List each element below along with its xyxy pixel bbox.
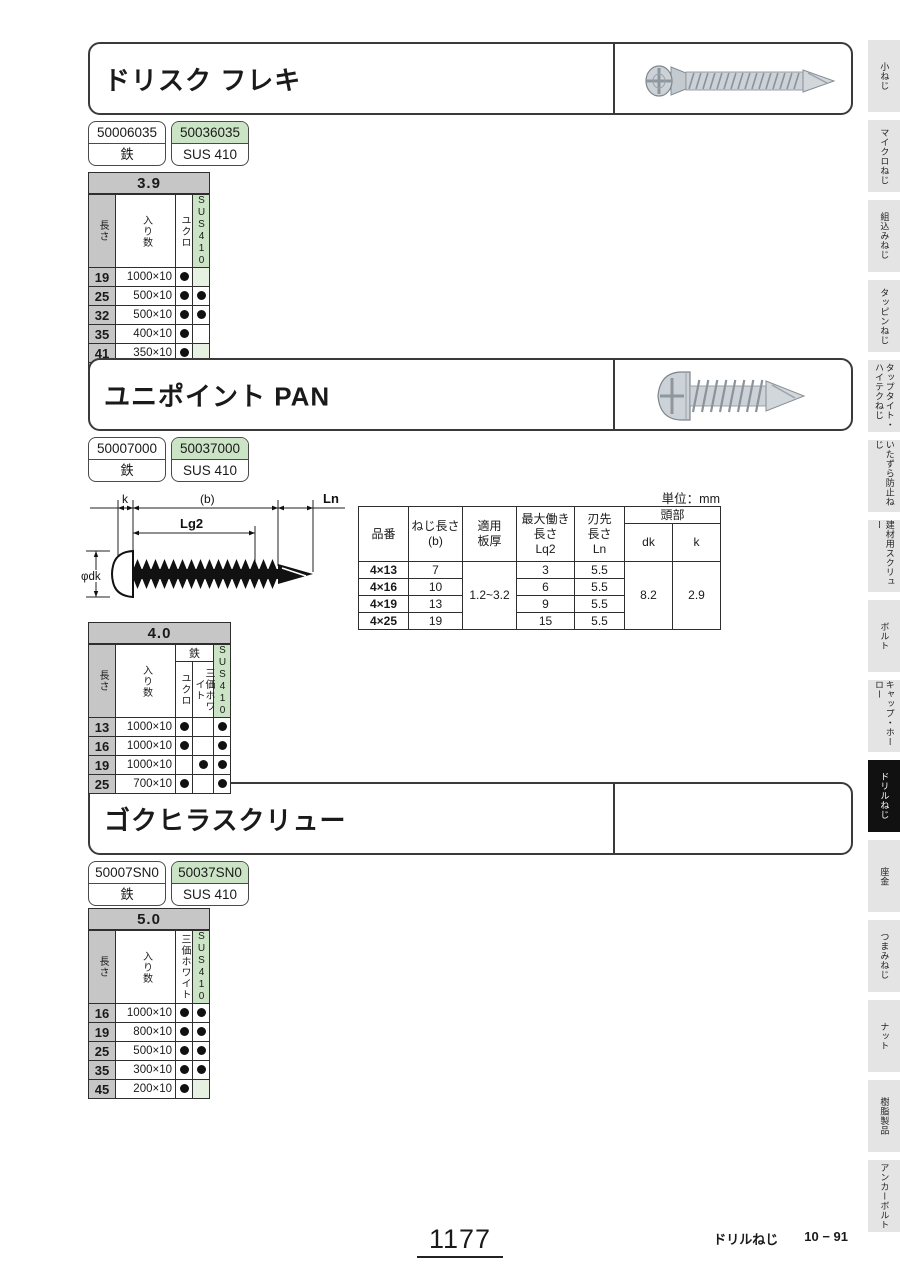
sidebar-tab-14[interactable]: 樹脂製品 (868, 1080, 900, 1152)
qty-cell: 200×10 (116, 1080, 176, 1099)
availability-dot (180, 291, 189, 300)
part-code: 50037000 (172, 438, 248, 460)
length-cell: 19 (89, 756, 116, 775)
spec-b-cell: 19 (409, 613, 463, 630)
qty-cell: 300×10 (116, 1061, 176, 1080)
availability-dot (180, 310, 189, 319)
spec-dk-cell: 8.2 (625, 562, 673, 630)
part-number-box: 50007000鉄 (88, 437, 166, 482)
spec-col-dk: dk (625, 524, 673, 562)
finish-dot-cell (176, 287, 193, 306)
finish-dot-cell (193, 737, 214, 756)
availability-dot (218, 741, 227, 750)
length-header: 長さ (89, 194, 116, 268)
size-table: 3.9長さ入り数ユクロSUS410191000×1025500×1032500×… (88, 172, 210, 382)
availability-dot (180, 779, 189, 788)
availability-dot (180, 272, 189, 281)
length-cell: 16 (89, 1004, 116, 1023)
sidebar-tab-5[interactable]: タップタイト・ ハイテクねじ (868, 360, 900, 432)
spec-lq2-cell: 9 (517, 596, 575, 613)
availability-dot (218, 779, 227, 788)
length-header: 長さ (89, 644, 116, 718)
availability-dot (197, 1027, 206, 1036)
finish-dot-cell (193, 775, 214, 794)
dim-label-dk: φdk (81, 571, 101, 583)
finish-dot-cell (176, 756, 193, 775)
availability-dot (218, 760, 227, 769)
spec-col-screw-len: ねじ長さ (b) (409, 507, 463, 562)
spec-col-work-len: 最大働き 長さ Lq2 (517, 507, 575, 562)
spec-ln-cell: 5.5 (575, 562, 625, 579)
sidebar-tab-8[interactable]: ボルト (868, 600, 900, 672)
availability-dot (197, 310, 206, 319)
size-band: 3.9 (89, 173, 210, 195)
availability-dot (180, 348, 189, 357)
qty-header: 入り数 (116, 930, 176, 1004)
size-table: 5.0長さ入り数三価ホワイトSUS410161000×1019800×10255… (88, 908, 210, 1099)
finish-dot-cell (193, 325, 210, 344)
part-numbers-3: 50007SN0鉄50037SN0SUS 410 (88, 861, 249, 906)
part-numbers-2: 50007000鉄50037000SUS 410 (88, 437, 249, 482)
spec-col-head: 頭部 (625, 507, 721, 524)
finish-dot-cell (214, 737, 231, 756)
length-cell: 25 (89, 1042, 116, 1061)
spec-lq2-cell: 6 (517, 579, 575, 596)
finish-dot-cell (176, 268, 193, 287)
finish-dot-cell (214, 718, 231, 737)
spec-b-cell: 13 (409, 596, 463, 613)
sidebar-tab-6[interactable]: いたずら防止ねじ (868, 440, 900, 512)
size-band: 4.0 (89, 623, 231, 645)
availability-dot (180, 1046, 189, 1055)
part-number-box: 50007SN0鉄 (88, 861, 166, 906)
availability-dot (180, 722, 189, 731)
finish-dot-cell (193, 287, 210, 306)
header-divider (613, 360, 615, 429)
availability-dot (180, 1084, 189, 1093)
finish-dot-cell (214, 756, 231, 775)
sidebar-tab-12[interactable]: つまみねじ (868, 920, 900, 992)
finish-header: 三価ホワイト (193, 662, 214, 718)
availability-dot (199, 760, 208, 769)
qty-cell: 500×10 (116, 287, 176, 306)
qty-cell: 1000×10 (116, 756, 176, 775)
sidebar-tab-13[interactable]: ナット (868, 1000, 900, 1072)
part-material: 鉄 (89, 460, 165, 481)
qty-header: 入り数 (116, 644, 176, 718)
dim-label-b: (b) (200, 492, 215, 506)
availability-dot (218, 722, 227, 731)
qty-cell: 1000×10 (116, 718, 176, 737)
length-cell: 25 (89, 775, 116, 794)
finish-dot-cell (193, 1023, 210, 1042)
spec-table: 品番 ねじ長さ (b) 適用 板厚 最大働き 長さ Lq2 刃先 長さ Ln 頭… (358, 506, 721, 630)
finish-header: SUS410 (214, 644, 231, 718)
spec-part-cell: 4×13 (359, 562, 409, 579)
qty-cell: 1000×10 (116, 737, 176, 756)
section-title-2: ユニポイント PAN (104, 376, 330, 413)
qty-cell: 700×10 (116, 775, 176, 794)
part-numbers-1: 50006035鉄50036035SUS 410 (88, 121, 249, 166)
length-cell: 45 (89, 1080, 116, 1099)
size-table: 4.0長さ入り数鉄SUS410ユクロ三価ホワイト131000×10161000×… (88, 622, 231, 794)
size-table-5-0: 5.0長さ入り数三価ホワイトSUS410161000×1019800×10255… (88, 908, 210, 1099)
length-cell: 13 (89, 718, 116, 737)
finish-dot-cell (193, 306, 210, 325)
catalog-page: ドリスク フレキ 50006035鉄50036035SUS 410 3.9長さ入… (0, 0, 900, 1272)
availability-dot (197, 1065, 206, 1074)
qty-cell: 500×10 (116, 1042, 176, 1061)
finish-header: SUS410 (193, 930, 210, 1004)
dim-label-lg2: Lg2 (180, 516, 203, 531)
finish-dot-cell (176, 306, 193, 325)
finish-dot-cell (176, 1080, 193, 1099)
part-number-box: 50037000SUS 410 (171, 437, 249, 482)
availability-dot (180, 741, 189, 750)
sidebar-tab-11[interactable]: 座金 (868, 840, 900, 912)
qty-cell: 500×10 (116, 306, 176, 325)
availability-dot (180, 1065, 189, 1074)
spec-lq2-cell: 3 (517, 562, 575, 579)
finish-dot-cell (176, 775, 193, 794)
section-header-box-1: ドリスク フレキ (88, 42, 853, 115)
length-cell: 35 (89, 325, 116, 344)
finish-dot-cell (193, 756, 214, 775)
part-code: 50007000 (89, 438, 165, 460)
spec-ln-cell: 5.5 (575, 596, 625, 613)
part-code: 50007SN0 (89, 862, 165, 884)
spec-b-cell: 7 (409, 562, 463, 579)
availability-dot (197, 291, 206, 300)
qty-cell: 1000×10 (116, 1004, 176, 1023)
part-code: 50037SN0 (172, 862, 248, 884)
category-sidebar: 小ねじマイクロねじ組込みねじタッピンねじタップタイト・ ハイテクねじいたずら防止… (868, 40, 900, 1232)
part-material: 鉄 (89, 884, 165, 905)
size-table-4-0: 4.0長さ入り数鉄SUS410ユクロ三価ホワイト131000×10161000×… (88, 622, 231, 794)
sidebar-tab-15[interactable]: アンカーボルト (868, 1160, 900, 1232)
section-title-1: ドリスク フレキ (104, 60, 301, 97)
finish-dot-cell (176, 1004, 193, 1023)
length-cell: 35 (89, 1061, 116, 1080)
finish-dot-cell (193, 718, 214, 737)
qty-cell: 800×10 (116, 1023, 176, 1042)
spec-b-cell: 10 (409, 579, 463, 596)
finish-header: SUS410 (193, 194, 210, 268)
spec-lq2-cell: 15 (517, 613, 575, 630)
finish-dot-cell (193, 1042, 210, 1061)
pan-head-drill-screw-photo-icon (646, 366, 821, 426)
finish-dot-cell (176, 737, 193, 756)
part-number-box: 50036035SUS 410 (171, 121, 249, 166)
length-cell: 25 (89, 287, 116, 306)
size-band: 5.0 (89, 909, 210, 931)
qty-header: 入り数 (116, 194, 176, 268)
spec-part-cell: 4×19 (359, 596, 409, 613)
material-group-header: 鉄 (176, 644, 214, 662)
length-cell: 16 (89, 737, 116, 756)
sidebar-tab-4[interactable]: タッピンねじ (868, 280, 900, 352)
size-table-3-9: 3.9長さ入り数ユクロSUS410191000×1025500×1032500×… (88, 172, 210, 382)
finish-dot-cell (176, 1061, 193, 1080)
unit-label: 単位：mm (600, 488, 720, 507)
spec-part-cell: 4×25 (359, 613, 409, 630)
screw-dimension-diagram: k (b) Ln Lg2 φdk (80, 486, 362, 616)
availability-dot (197, 1046, 206, 1055)
sidebar-tab-2[interactable]: マイクロねじ (868, 120, 900, 192)
finish-dot-cell (176, 1042, 193, 1061)
part-code: 50006035 (89, 122, 165, 144)
sidebar-tab-3[interactable]: 組込みねじ (868, 200, 900, 272)
spec-ln-cell: 5.5 (575, 579, 625, 596)
section-header-box-2: ユニポイント PAN (88, 358, 853, 431)
part-number-box: 50037SN0SUS 410 (171, 861, 249, 906)
finish-dot-cell (176, 325, 193, 344)
header-divider (613, 44, 615, 113)
dim-label-ln: Ln (323, 491, 339, 506)
length-cell: 19 (89, 1023, 116, 1042)
qty-cell: 400×10 (116, 325, 176, 344)
footer-right: ドリルねじ 10 − 91 (713, 1229, 848, 1248)
part-material: SUS 410 (172, 144, 248, 165)
header-divider (613, 784, 615, 853)
spec-plate-cell: 1.2~3.2 (463, 562, 517, 630)
part-material: 鉄 (89, 144, 165, 165)
finish-header: 三価ホワイト (176, 930, 193, 1004)
spec-table-wrap: 品番 ねじ長さ (b) 適用 板厚 最大働き 長さ Lq2 刃先 長さ Ln 頭… (358, 506, 721, 630)
sidebar-tab-9[interactable]: キャップ・ホーロー (868, 680, 900, 752)
sidebar-tab-1[interactable]: 小ねじ (868, 40, 900, 112)
length-cell: 19 (89, 268, 116, 287)
part-number-box: 50006035鉄 (88, 121, 166, 166)
spec-col-plate: 適用 板厚 (463, 507, 517, 562)
length-cell: 32 (89, 306, 116, 325)
finish-header: ユクロ (176, 662, 193, 718)
finish-dot-cell (214, 775, 231, 794)
finish-dot-cell (193, 1080, 210, 1099)
finish-dot-cell (176, 1023, 193, 1042)
section-title-3: ゴクヒラスクリュー (104, 800, 346, 837)
availability-dot (197, 1008, 206, 1017)
part-material: SUS 410 (172, 884, 248, 905)
finish-dot-cell (176, 718, 193, 737)
footer-code: 10 − 91 (804, 1229, 848, 1248)
footer-category: ドリルねじ (713, 1229, 778, 1248)
finish-header: ユクロ (176, 194, 193, 268)
finish-dot-cell (193, 1004, 210, 1023)
spec-ln-cell: 5.5 (575, 613, 625, 630)
spec-part-cell: 4×16 (359, 579, 409, 596)
part-code: 50036035 (172, 122, 248, 144)
spec-k-cell: 2.9 (673, 562, 721, 630)
spec-col-part: 品番 (359, 507, 409, 562)
page-number: 1177 (405, 1224, 515, 1255)
spec-col-tip-len: 刃先 長さ Ln (575, 507, 625, 562)
dim-label-k: k (122, 492, 129, 506)
qty-cell: 1000×10 (116, 268, 176, 287)
flat-head-drill-screw-photo-icon (638, 57, 843, 105)
part-material: SUS 410 (172, 460, 248, 481)
availability-dot (180, 1027, 189, 1036)
sidebar-tab-10[interactable]: ドリルねじ (868, 760, 900, 832)
length-header: 長さ (89, 930, 116, 1004)
availability-dot (180, 1008, 189, 1017)
finish-dot-cell (193, 268, 210, 287)
spec-col-k: k (673, 524, 721, 562)
sidebar-tab-7[interactable]: 建材用スクリュー (868, 520, 900, 592)
availability-dot (180, 329, 189, 338)
finish-dot-cell (193, 1061, 210, 1080)
